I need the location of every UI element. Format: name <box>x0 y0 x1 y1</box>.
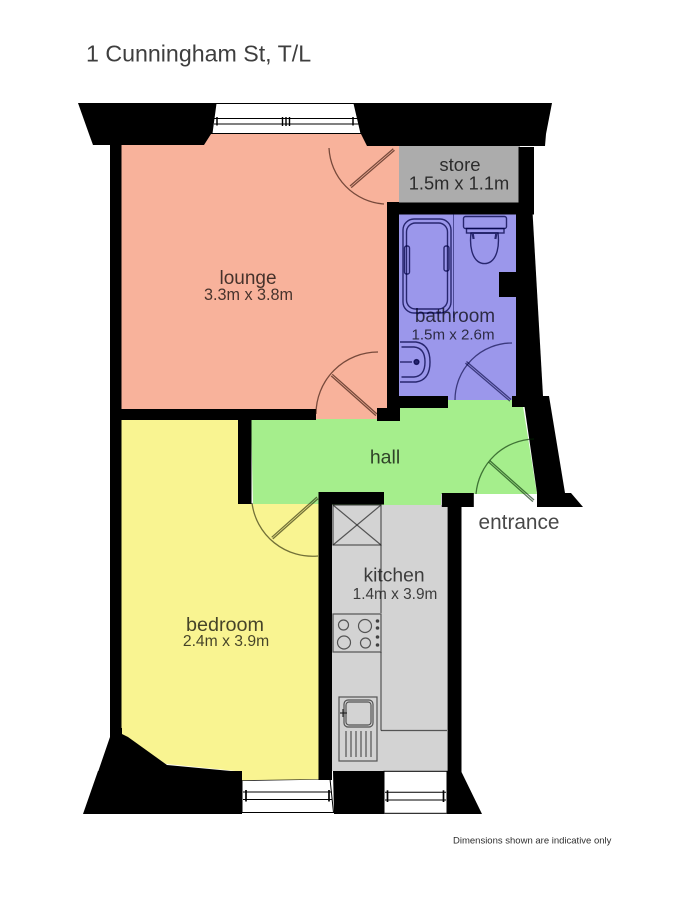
svg-text:2.4m x 3.9m: 2.4m x 3.9m <box>183 633 269 650</box>
svg-text:entrance: entrance <box>479 511 560 534</box>
svg-text:Dimensions shown are indicativ: Dimensions shown are indicative only <box>453 836 612 847</box>
svg-text:1.4m x 3.9m: 1.4m x 3.9m <box>353 586 438 603</box>
svg-text:kitchen: kitchen <box>363 566 424 587</box>
svg-text:1.5m x 2.6m: 1.5m x 2.6m <box>411 327 494 344</box>
svg-text:1 Cunningham St, T/L: 1 Cunningham St, T/L <box>86 41 311 67</box>
svg-text:3.3m x 3.8m: 3.3m x 3.8m <box>204 286 293 304</box>
svg-text:hall: hall <box>370 447 400 469</box>
svg-text:1.5m x 1.1m: 1.5m x 1.1m <box>409 173 510 194</box>
